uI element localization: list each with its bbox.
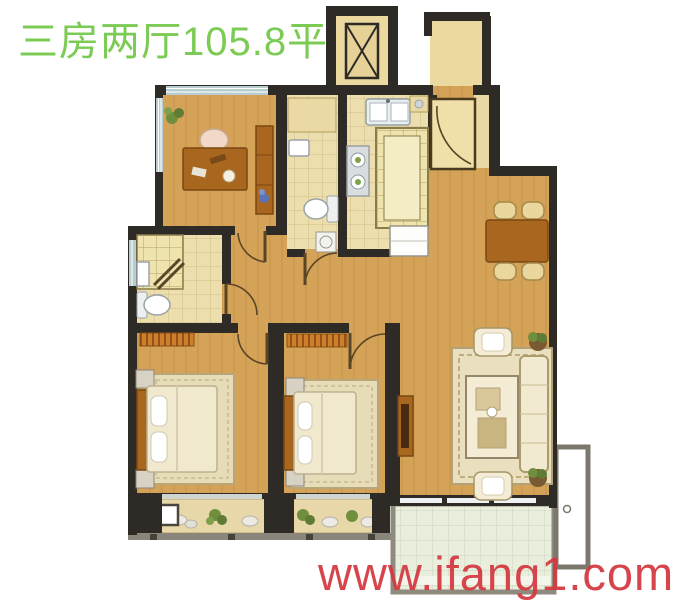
floorplan-screenshot: 三房两厅105.8平: [0, 0, 700, 600]
washer: [316, 232, 336, 252]
kitchen-sink: [366, 99, 410, 125]
pillow: [151, 396, 167, 426]
page-title: 三房两厅105.8平: [18, 20, 328, 64]
dining-chair: [522, 263, 544, 280]
tv-cabinet: [398, 396, 413, 456]
bath-sink: [289, 140, 309, 156]
entry: [431, 95, 489, 169]
bed-headboard: [284, 396, 294, 470]
pillow: [151, 432, 167, 462]
elevator: [326, 6, 398, 95]
elevator-icon: [346, 24, 378, 78]
study-left-window: [156, 98, 163, 172]
fridge: [390, 226, 428, 256]
outer-sill: [128, 533, 392, 540]
bed-headboard: [137, 390, 147, 470]
dining-chair: [522, 202, 544, 219]
study-top-window: [166, 86, 268, 95]
floor-plan: [0, 0, 700, 600]
coffee-table: [466, 376, 518, 458]
wardrobe: [256, 126, 273, 214]
watermark: www.ifang1.com: [318, 546, 674, 600]
dining-chair: [494, 263, 516, 280]
dining-table: [486, 220, 548, 262]
bath-cabinet: [288, 98, 336, 132]
kitchen-island: [376, 128, 428, 228]
stove-icon: [347, 146, 369, 196]
bathroom-left-window: [129, 240, 136, 286]
kitchen-cabinet-corner: [410, 96, 428, 112]
dining-chair: [494, 202, 516, 219]
flower-beds: [128, 493, 392, 540]
pillow: [298, 436, 312, 464]
pillow: [298, 402, 312, 430]
sofa: [520, 356, 548, 472]
bath-sink: [137, 262, 149, 286]
stairwell: [424, 12, 491, 94]
